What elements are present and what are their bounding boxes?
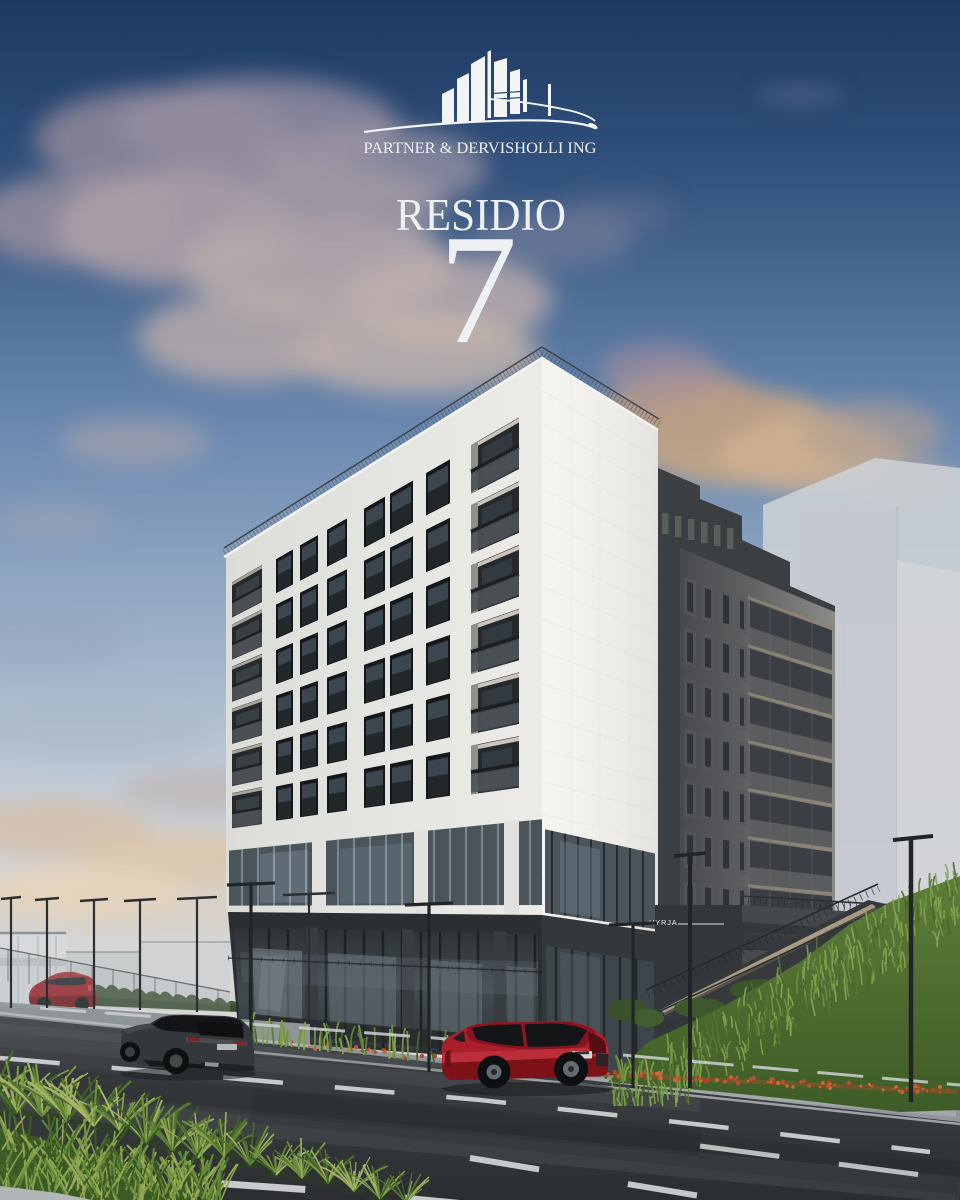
- svg-text:PARTNER & DERVISHOLLI ING: PARTNER & DERVISHOLLI ING: [364, 140, 597, 157]
- svg-text:7: 7: [439, 202, 518, 376]
